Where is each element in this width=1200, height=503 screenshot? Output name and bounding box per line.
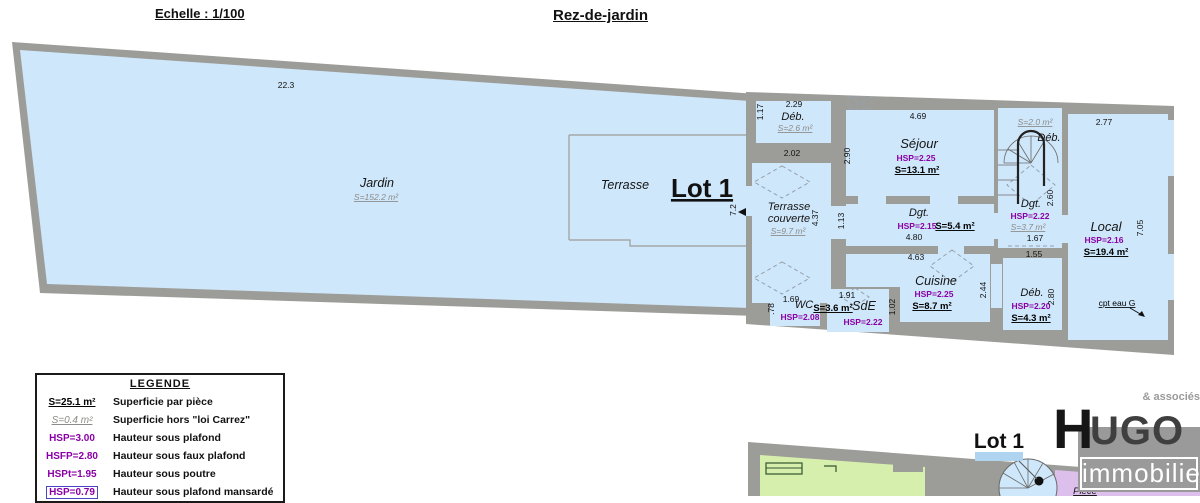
- area-label-deb-bottom: S=4.3 m²: [1011, 313, 1050, 324]
- dimension-label: 4.80: [906, 232, 923, 242]
- agency-logo: & associés H UGO immobilier: [1053, 391, 1200, 492]
- legend-desc: Hauteur sous faux plafond: [113, 450, 245, 462]
- area-label-dgt-right: S=3.7 m²: [1011, 222, 1047, 232]
- dimension-label: 1.55: [1026, 249, 1043, 259]
- legend-key: HSP=0.79: [46, 486, 98, 499]
- footer-lot-label: Lot 1: [974, 430, 1024, 453]
- room-label-sde: SdE: [852, 299, 876, 313]
- window: [1166, 254, 1174, 300]
- legend-box: LEGENDE S=25.1 m² Superficie par pièce S…: [35, 373, 285, 503]
- dimension-label: 1.91: [839, 290, 856, 300]
- logo-wordmark: H UGO: [1053, 405, 1200, 455]
- legend-key: S=25.1 m²: [37, 397, 107, 408]
- legend-row: HSP=3.00 Hauteur sous plafond: [37, 429, 283, 447]
- dimension-label: 22.3: [278, 80, 295, 90]
- room-label-deb-bottom: Déb.: [1020, 287, 1043, 299]
- dimension-label: 2.77: [1096, 117, 1113, 127]
- area-label-terrasse-couverte: S=9.7 m²: [771, 226, 807, 236]
- room-label-cuisine: Cuisine: [915, 274, 957, 288]
- legend-row: S=25.1 m² Superficie par pièce: [37, 393, 283, 411]
- room-label-dgt-center: Dgt.: [909, 207, 929, 219]
- legend-desc: Superficie par pièce: [113, 396, 213, 408]
- dimension-label: 2.80: [1046, 288, 1056, 305]
- window: [1166, 120, 1174, 176]
- room-label-deb-stairs: Déb.: [1037, 132, 1060, 144]
- dimension-label: 2.02: [784, 148, 801, 158]
- dimension-label: 2.29: [786, 99, 803, 109]
- logo-rest: UGO: [1090, 411, 1184, 451]
- legend-title: LEGENDE: [37, 378, 283, 390]
- dimension-label: 4.69: [910, 111, 927, 121]
- room-label-jardin: Jardin: [359, 176, 394, 190]
- area-label-sejour: S=13.1 m²: [895, 165, 940, 176]
- area-label-wc-sde: S=3.6 m²: [813, 303, 852, 314]
- legend-row: HSP=0.79 Hauteur sous plafond mansardé: [37, 483, 283, 501]
- legend-row: S=0.4 m² Superficie hors "loi Carrez": [37, 411, 283, 429]
- legend-desc: Hauteur sous plafond: [113, 432, 221, 444]
- dimension-label: 2.60: [1045, 189, 1055, 206]
- dimension-label: .78: [766, 303, 776, 315]
- area-label-dgt-center: S=5.4 m²: [935, 221, 974, 232]
- hsp-label-dgt-center: HSP=2.15: [898, 221, 937, 231]
- area-label-cuisine: S=8.7 m²: [912, 301, 951, 312]
- cpt-eau-annotation: cpt eau G: [1099, 298, 1136, 308]
- lot-label: Lot 1: [671, 173, 733, 203]
- dimension-label: 1.13: [836, 212, 846, 229]
- hsp-label-sde: HSP=2.22: [844, 317, 883, 327]
- logo-initial: H: [1053, 401, 1093, 457]
- dimension-label: 1.67: [1027, 233, 1044, 243]
- area-label-jardin: S=152.2 m²: [354, 192, 399, 202]
- legend-key: HSPt=1.95: [37, 469, 107, 480]
- legend-row: HSFP=2.80 Hauteur sous faux plafond: [37, 447, 283, 465]
- legend-key: S=0.4 m²: [37, 415, 107, 426]
- legend-key: HSP=3.00: [37, 433, 107, 444]
- room-label-dgt-right: Dgt.: [1021, 198, 1041, 210]
- hsp-label-local: HSP=2.16: [1085, 235, 1124, 245]
- dimension-label: 4.37: [810, 209, 820, 226]
- lot-highlight-bar: [975, 452, 1023, 461]
- logo-tagline: immobilier: [1080, 457, 1198, 490]
- legend-desc: Hauteur sous plafond mansardé: [113, 486, 273, 498]
- dimension-label: 4.63: [908, 252, 925, 262]
- hsp-label-dgt-right: HSP=2.22: [1011, 211, 1050, 221]
- dimension-label: 1.69: [783, 294, 800, 304]
- hsp-label-deb-bottom: HSP=2.20: [1012, 301, 1051, 311]
- room-label-deb-top: Déb.: [781, 111, 804, 123]
- area-label-deb-stairs: S=2.0 m²: [1018, 117, 1054, 127]
- hsp-label-sejour: HSP=2.25: [897, 153, 936, 163]
- room-label-terrasse: Terrasse: [601, 178, 649, 192]
- legend-desc: Superficie hors "loi Carrez": [113, 414, 250, 426]
- dimension-label: 7.2: [728, 204, 738, 216]
- room-label-terrasse-couverte-2: couverte: [768, 213, 810, 225]
- room-label-terrasse-couverte: Terrasse: [768, 201, 810, 213]
- dimension-label: 7.05: [1135, 219, 1145, 236]
- legend-row: HSPt=1.95 Hauteur sous poutre: [37, 465, 283, 483]
- area-label-deb-top: S=2.6 m²: [778, 123, 814, 133]
- dimension-label: 2.90: [842, 147, 852, 164]
- dimension-label: 1.02: [887, 298, 897, 315]
- dimension-label: 2.44: [978, 281, 988, 298]
- room-label-local: Local: [1090, 219, 1122, 234]
- hsp-label-cuisine: HSP=2.25: [915, 289, 954, 299]
- area-label-local: S=19.4 m²: [1084, 247, 1129, 258]
- logo-tagline-band: immobilier: [1078, 455, 1200, 492]
- legend-key: HSFP=2.80: [37, 451, 107, 462]
- dimension-label: 1.17: [755, 103, 765, 120]
- room-label-sejour: Séjour: [900, 136, 938, 151]
- legend-desc: Hauteur sous poutre: [113, 468, 216, 480]
